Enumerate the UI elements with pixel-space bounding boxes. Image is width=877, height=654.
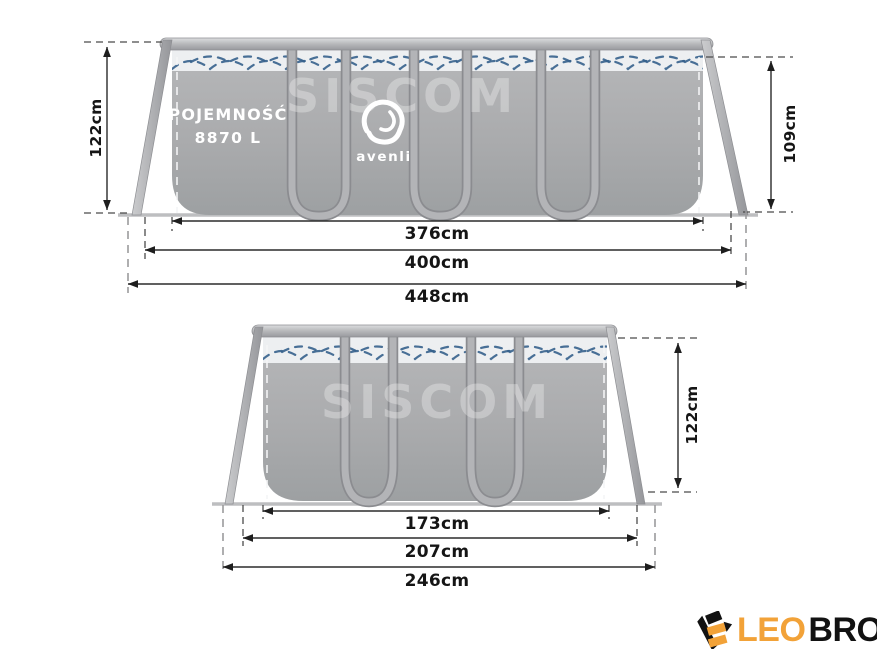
capacity-line1: POJEMNOŚĆ [168, 105, 287, 124]
dimension-label-109cm: 109cm [781, 104, 799, 163]
right-leg [701, 40, 748, 215]
avenli-logo-text: avenli [356, 149, 412, 165]
dimension-label-122cm-left: 122cm [87, 98, 105, 157]
leobro-logo-text-primary: LEO [737, 609, 805, 651]
right-leg [606, 327, 645, 504]
water-band [172, 50, 703, 71]
pool-dimension-diagram: SISCOM POJEMNOŚĆ 8870 L avenli [0, 0, 877, 654]
left-leg [132, 40, 172, 215]
left-leg [225, 327, 263, 504]
leobro-logo-icon [696, 611, 734, 649]
dimension-label-122cm-right: 122cm [683, 385, 701, 444]
dimension-label-376cm: 376cm [405, 224, 470, 244]
pool-end-view: SISCOM 122cm 173cm 207cm [212, 325, 701, 591]
top-rail [160, 38, 713, 50]
leobro-logo-text-secondary: BRO [808, 609, 877, 651]
capacity-line2: 8870 L [195, 129, 262, 147]
dimension-label-400cm: 400cm [405, 253, 470, 273]
dimension-label-173cm: 173cm [405, 514, 470, 534]
dimension-label-207cm: 207cm [405, 542, 470, 562]
dimension-height-right: 109cm [706, 57, 799, 212]
dimension-width-173: 173cm [263, 505, 609, 534]
dimension-height-right: 122cm [618, 338, 701, 492]
siscom-watermark: SISCOM [321, 375, 553, 429]
pool-side-view: SISCOM POJEMNOŚĆ 8870 L avenli [84, 38, 799, 307]
dimension-label-448cm: 448cm [405, 287, 470, 307]
leobro-logo: LEOBRO [696, 609, 877, 651]
dimension-width-376: 376cm [172, 217, 703, 244]
dimension-label-246cm: 246cm [405, 571, 470, 591]
diagram-canvas: SISCOM POJEMNOŚĆ 8870 L avenli [0, 0, 877, 654]
top-rail [252, 325, 617, 337]
